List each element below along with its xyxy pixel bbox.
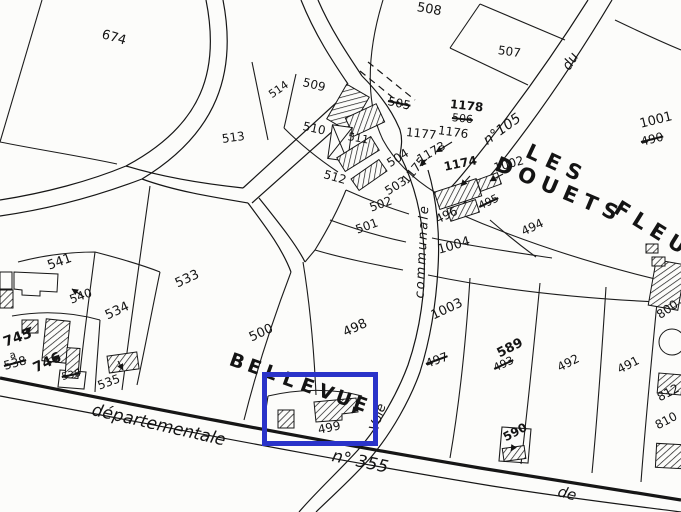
parcel-label-506: 506 [451,112,473,125]
building-outline [14,272,58,296]
map-label-de: de [556,484,578,503]
parcel-label-513: 513 [221,130,245,145]
building-outline [0,272,12,289]
hatched-building [0,290,13,308]
parcel-label-1177: 1177 [405,126,437,141]
hatched-building [502,446,526,462]
highlight-rectangle-parcel-499[interactable] [262,372,378,446]
hatched-building [655,443,681,468]
cadastral-map: 6745085075135145095105115125051178506117… [0,0,681,512]
hatched-building [652,257,665,266]
well-circle [659,329,681,355]
parcel-label-511: 511 [347,131,370,145]
parcel-label-508: 508 [416,1,443,18]
parcel-label-507: 507 [497,44,521,59]
